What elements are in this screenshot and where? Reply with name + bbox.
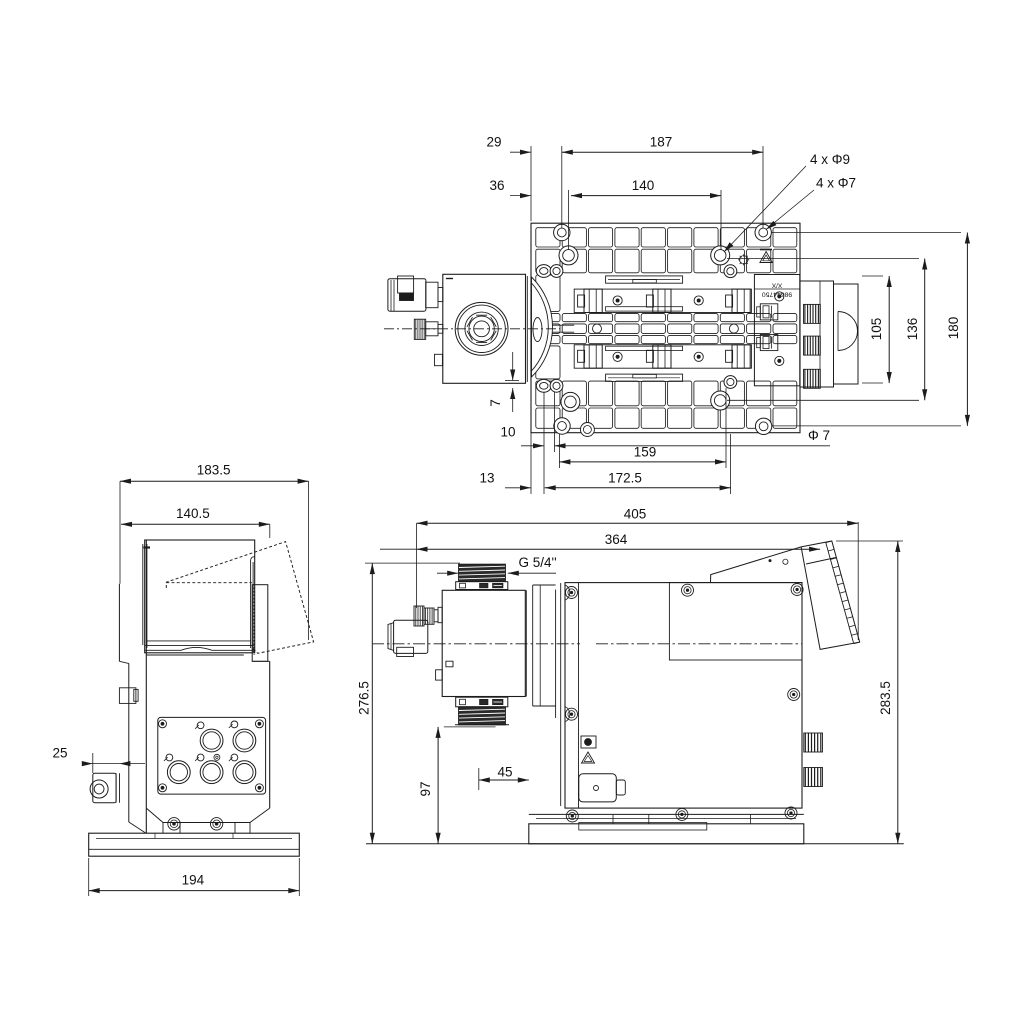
- svg-text:7: 7: [488, 399, 503, 407]
- svg-text:172.5: 172.5: [608, 471, 642, 486]
- svg-text:10: 10: [500, 425, 515, 440]
- svg-text:405: 405: [624, 507, 647, 522]
- svg-text:25: 25: [52, 746, 67, 761]
- svg-text:180: 180: [946, 317, 961, 340]
- svg-text:194: 194: [182, 873, 205, 888]
- svg-text:140: 140: [632, 178, 655, 193]
- svg-text:13: 13: [479, 471, 494, 486]
- svg-text:183.5: 183.5: [197, 463, 231, 478]
- svg-text:45: 45: [497, 765, 512, 780]
- svg-text:97: 97: [418, 781, 433, 796]
- svg-text:36: 36: [489, 178, 504, 193]
- svg-text:4 x Φ9: 4 x Φ9: [810, 152, 850, 167]
- svg-text:G 5/4'': G 5/4'': [519, 555, 557, 570]
- svg-text:X/X: X/X: [771, 282, 782, 289]
- svg-text:187: 187: [650, 135, 673, 150]
- svg-text:105: 105: [869, 318, 884, 341]
- svg-text:140.5: 140.5: [176, 506, 210, 521]
- svg-text:276.5: 276.5: [357, 681, 372, 715]
- svg-text:29: 29: [486, 135, 501, 150]
- svg-text:136: 136: [905, 318, 920, 341]
- svg-text:283.5: 283.5: [878, 681, 893, 715]
- svg-text:159: 159: [634, 445, 657, 460]
- svg-text:364: 364: [605, 532, 628, 547]
- svg-text:4 x Φ7: 4 x Φ7: [816, 176, 856, 191]
- svg-text:98644750: 98644750: [762, 291, 792, 298]
- svg-text:Φ 7: Φ 7: [808, 428, 830, 443]
